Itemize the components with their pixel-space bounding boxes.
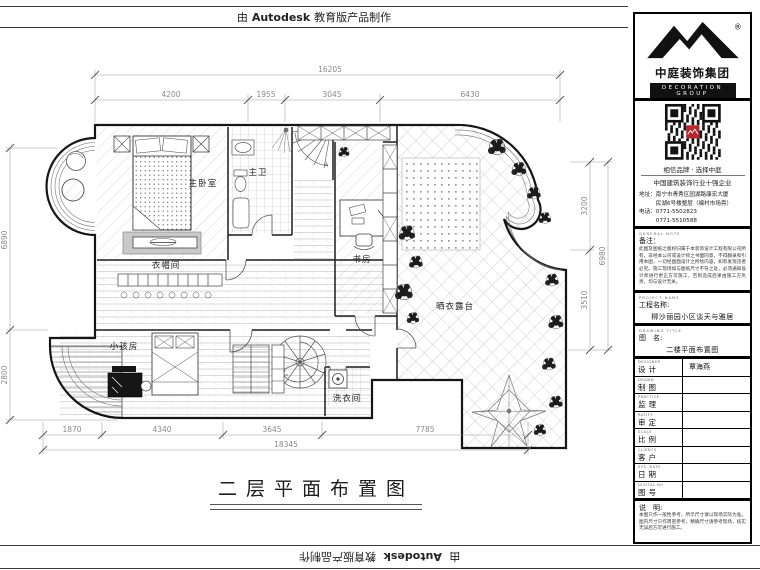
dim-right-1: 3200 (580, 196, 589, 215)
balcony-chair-table (62, 152, 86, 202)
qr-section (635, 98, 750, 162)
title-block: ® 中庭装饰集团 DECORATION GROUP 相信品牌 · 选择中庭 中国… (633, 12, 752, 544)
dim-right-2: 3510 (580, 290, 589, 309)
field-row-date: SYS. DATE日期 (635, 463, 750, 481)
address-line-1: 地址：南宁市青秀区园湖路康宏大厦 (639, 191, 746, 200)
plan-title: 二层平面布置图 (0, 474, 632, 510)
remark-section: 说 明: 本图只作一般性参考，所示尺寸请以现场实际为准。图内尺寸只作周密参考，精… (635, 498, 750, 538)
drawing-value: 二楼平面布置图 (639, 345, 746, 355)
company-logo: ® 中庭装饰集团 DECORATION GROUP (635, 14, 750, 98)
note-text: 此图及图纸之版权归属于本装饰设计工程有限公司所有，非经本公司或设计师之书面同意，… (639, 247, 746, 287)
dim-bottom-total: 18345 (274, 440, 298, 449)
field-row-drawing-no: DIGITAL NO图号 (635, 481, 750, 499)
autodesk-stamp-top: 由 Autodesk 教育版产品制作 (0, 6, 628, 28)
kids-bed (152, 333, 198, 395)
remark-label: 说 明: (639, 503, 746, 513)
louver-closet (233, 345, 284, 393)
stamp-brand: Autodesk (252, 11, 310, 24)
project-value: 柳沙丽园小区谈天与雅居 (639, 312, 746, 322)
dim-left-2: 2800 (0, 365, 9, 384)
project-name-section: PROJECT NAME 工程名称: 柳沙丽园小区谈天与雅居 (635, 290, 750, 323)
field-value-designer: 覃海燕 (683, 359, 750, 376)
project-label: 工程名称: (639, 300, 746, 310)
field-row-clients: CLIENTS客户 (635, 446, 750, 464)
field-row-drawn: DRAWN制图 (635, 376, 750, 394)
label-laundry: 洗衣间 (333, 393, 362, 404)
field-row-designer: DESIGNER设计 覃海燕 (635, 359, 750, 376)
dim-top-total: 16205 (318, 65, 342, 74)
slogan-1: 相信品牌 · 选择中庭 (635, 162, 750, 175)
dim-bottom-3: 3645 (262, 425, 281, 434)
label-master-bedroom: 主卧室 (189, 178, 218, 189)
stamp-prefix: 由 (237, 9, 248, 25)
label-kids-room: 小孩房 (110, 341, 139, 352)
address-line-2: 民湖6号楼整层（编村市场旁） (639, 200, 746, 209)
field-row-ratify: RATIFY审定 (635, 411, 750, 429)
wardrobe-cabinets (298, 126, 390, 140)
stamp-suffix: 教育版产品制作 (314, 9, 391, 25)
svg-text:®: ® (733, 23, 740, 32)
dim-left-1: 6890 (0, 230, 9, 249)
field-rows: DESIGNER设计 覃海燕 DRAWN制图 PRACTICE监理 RATIFY… (635, 356, 750, 498)
dim-bottom-1: 1870 (62, 425, 81, 434)
mountain-logo-icon: ® (645, 20, 741, 60)
label-master-bath: 主卫 (248, 167, 267, 178)
tv-cabinet (133, 237, 197, 248)
dim-bottom-4: 7785 (415, 425, 434, 434)
dim-top-1: 4200 (161, 90, 180, 99)
phone-line-2: 0771-5510588 (639, 217, 746, 226)
washing-machine (329, 370, 347, 388)
slogan-2: 中国建筑装饰行业十强企业 (641, 175, 745, 188)
dim-bottom-2: 4340 (152, 425, 171, 434)
dim-top-2: 1955 (256, 90, 275, 99)
field-row-scale: SCALE比例 (635, 428, 750, 446)
drawing-sheet: 由 Autodesk 教育版产品制作 (0, 0, 760, 570)
dim-top-4: 6430 (460, 90, 479, 99)
dim-top-3: 3045 (322, 90, 341, 99)
title-underline (210, 504, 422, 510)
dim-right-total: 6980 (598, 246, 607, 265)
drawing-title-section: DRAWING TITLE 图 名: 二楼平面布置图 (635, 323, 750, 356)
label-cloakroom: 衣帽间 (152, 260, 181, 271)
autodesk-stamp-bottom: 由 Autodesk 教育版产品制作 (0, 545, 760, 569)
floor-plan-canvas: 主卧室 主卫 书房 衣帽间 晒衣露台 小孩房 洗衣间 16205 4200 19… (0, 30, 632, 538)
floor-cloakroom (97, 260, 396, 328)
slogans: 相信品牌 · 选择中庭 中国建筑装饰行业十强企业 (635, 162, 750, 188)
note-label: 备注： (639, 236, 746, 246)
phone-line-1: 电话：0771-5502823 (639, 208, 746, 217)
general-note: GENERAL NOTE 备注： 此图及图纸之版权归属于本装饰设计工程有限公司所… (635, 226, 750, 290)
drawing-label: 图 名: (639, 333, 746, 343)
bookshelf (383, 145, 397, 313)
qr-code (663, 102, 723, 162)
remark-text: 本图只作一般性参考，所示尺寸请以现场实际为准。图内尺寸只作周密参考，精确尺寸请参… (639, 513, 746, 533)
company-subtitle: DECORATION GROUP (650, 83, 736, 98)
label-study: 书房 (352, 254, 371, 265)
contact-info: 地址：南宁市青秀区园湖路康宏大厦 民湖6号楼整层（编村市场旁） 电话：0771-… (635, 188, 750, 226)
label-terrace: 晒衣露台 (436, 301, 474, 312)
company-name: 中庭装饰集团 (635, 65, 750, 81)
field-row-practice: PRACTICE监理 (635, 393, 750, 411)
